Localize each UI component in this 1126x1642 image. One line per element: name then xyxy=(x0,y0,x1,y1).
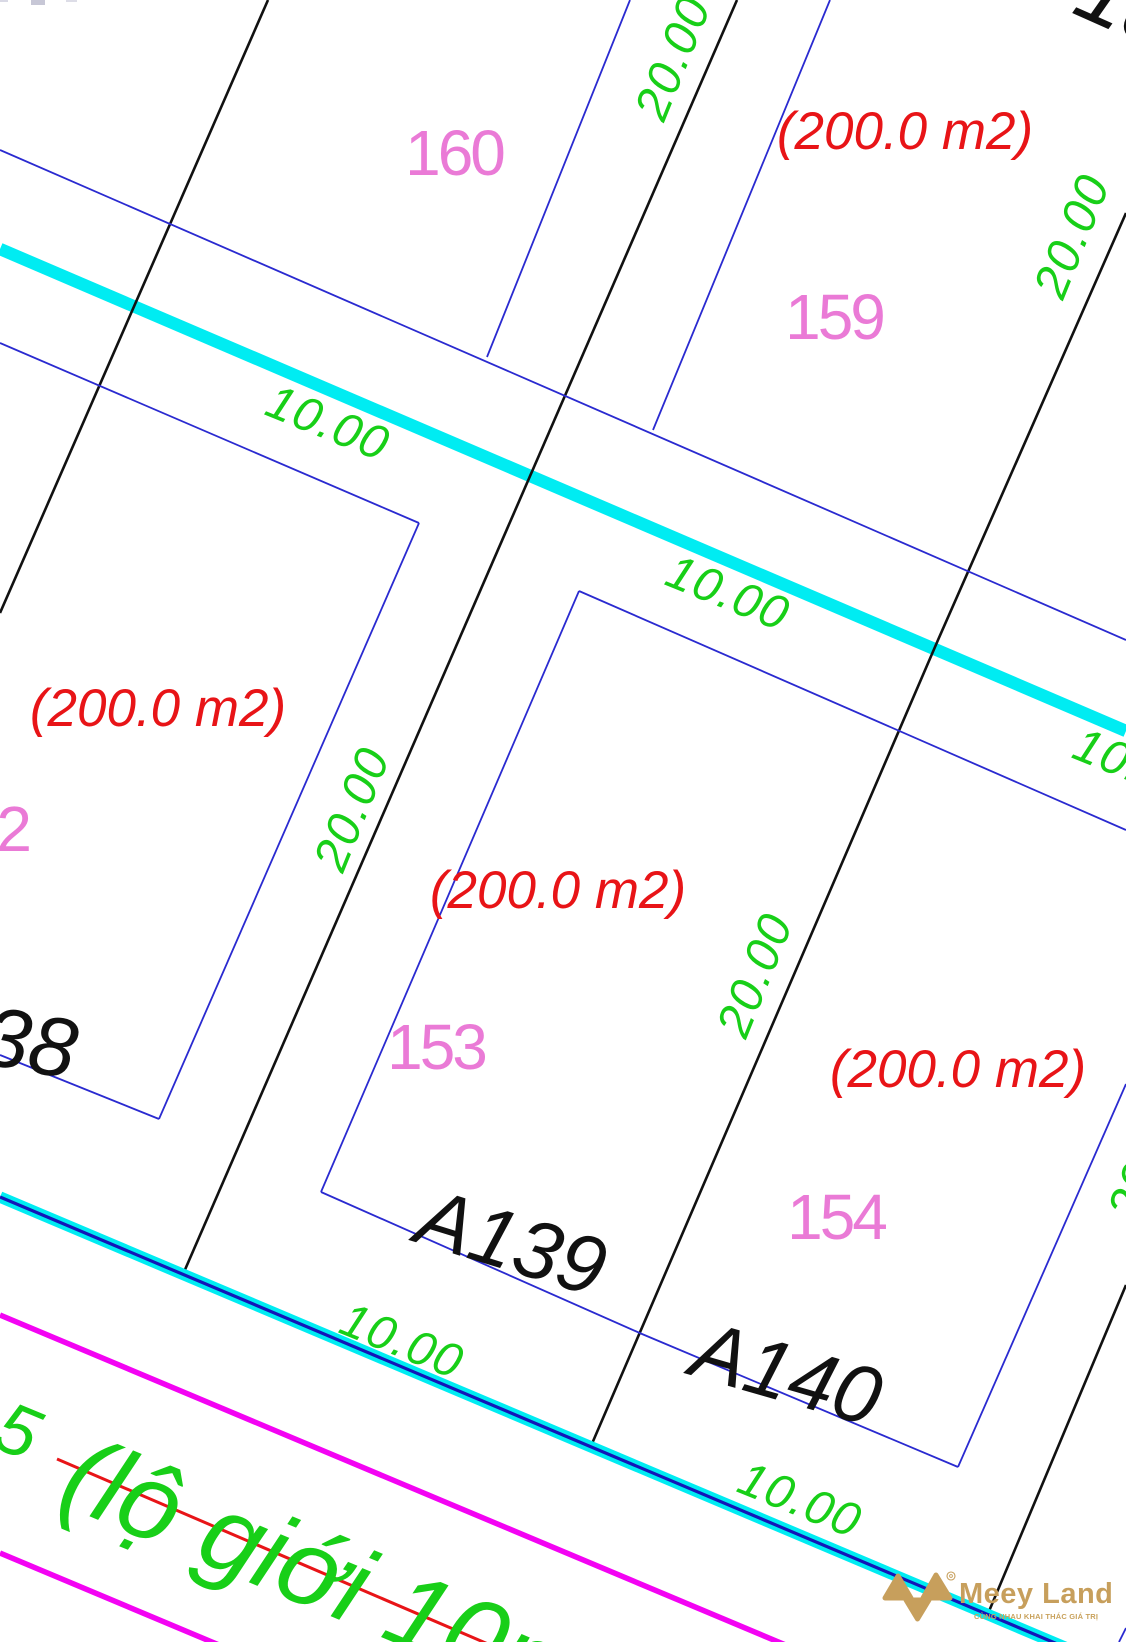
svg-text:159: 159 xyxy=(785,281,883,353)
svg-text:Meey Land: Meey Land xyxy=(959,1578,1113,1610)
svg-text:153: 153 xyxy=(387,1011,485,1083)
svg-text:(200.0 m2): (200.0 m2) xyxy=(430,861,686,920)
svg-text:152: 152 xyxy=(0,793,29,865)
svg-text:(200.0 m2): (200.0 m2) xyxy=(830,1040,1086,1099)
svg-text:CÙNG NHAU KHAI THÁC GIÁ TRỊ: CÙNG NHAU KHAI THÁC GIÁ TRỊ xyxy=(974,1612,1098,1621)
svg-text:160: 160 xyxy=(405,117,504,189)
svg-text:(200.0 m2): (200.0 m2) xyxy=(777,102,1033,161)
svg-text:(200.0 m2): (200.0 m2) xyxy=(30,679,286,738)
svg-text:154: 154 xyxy=(787,1181,886,1253)
